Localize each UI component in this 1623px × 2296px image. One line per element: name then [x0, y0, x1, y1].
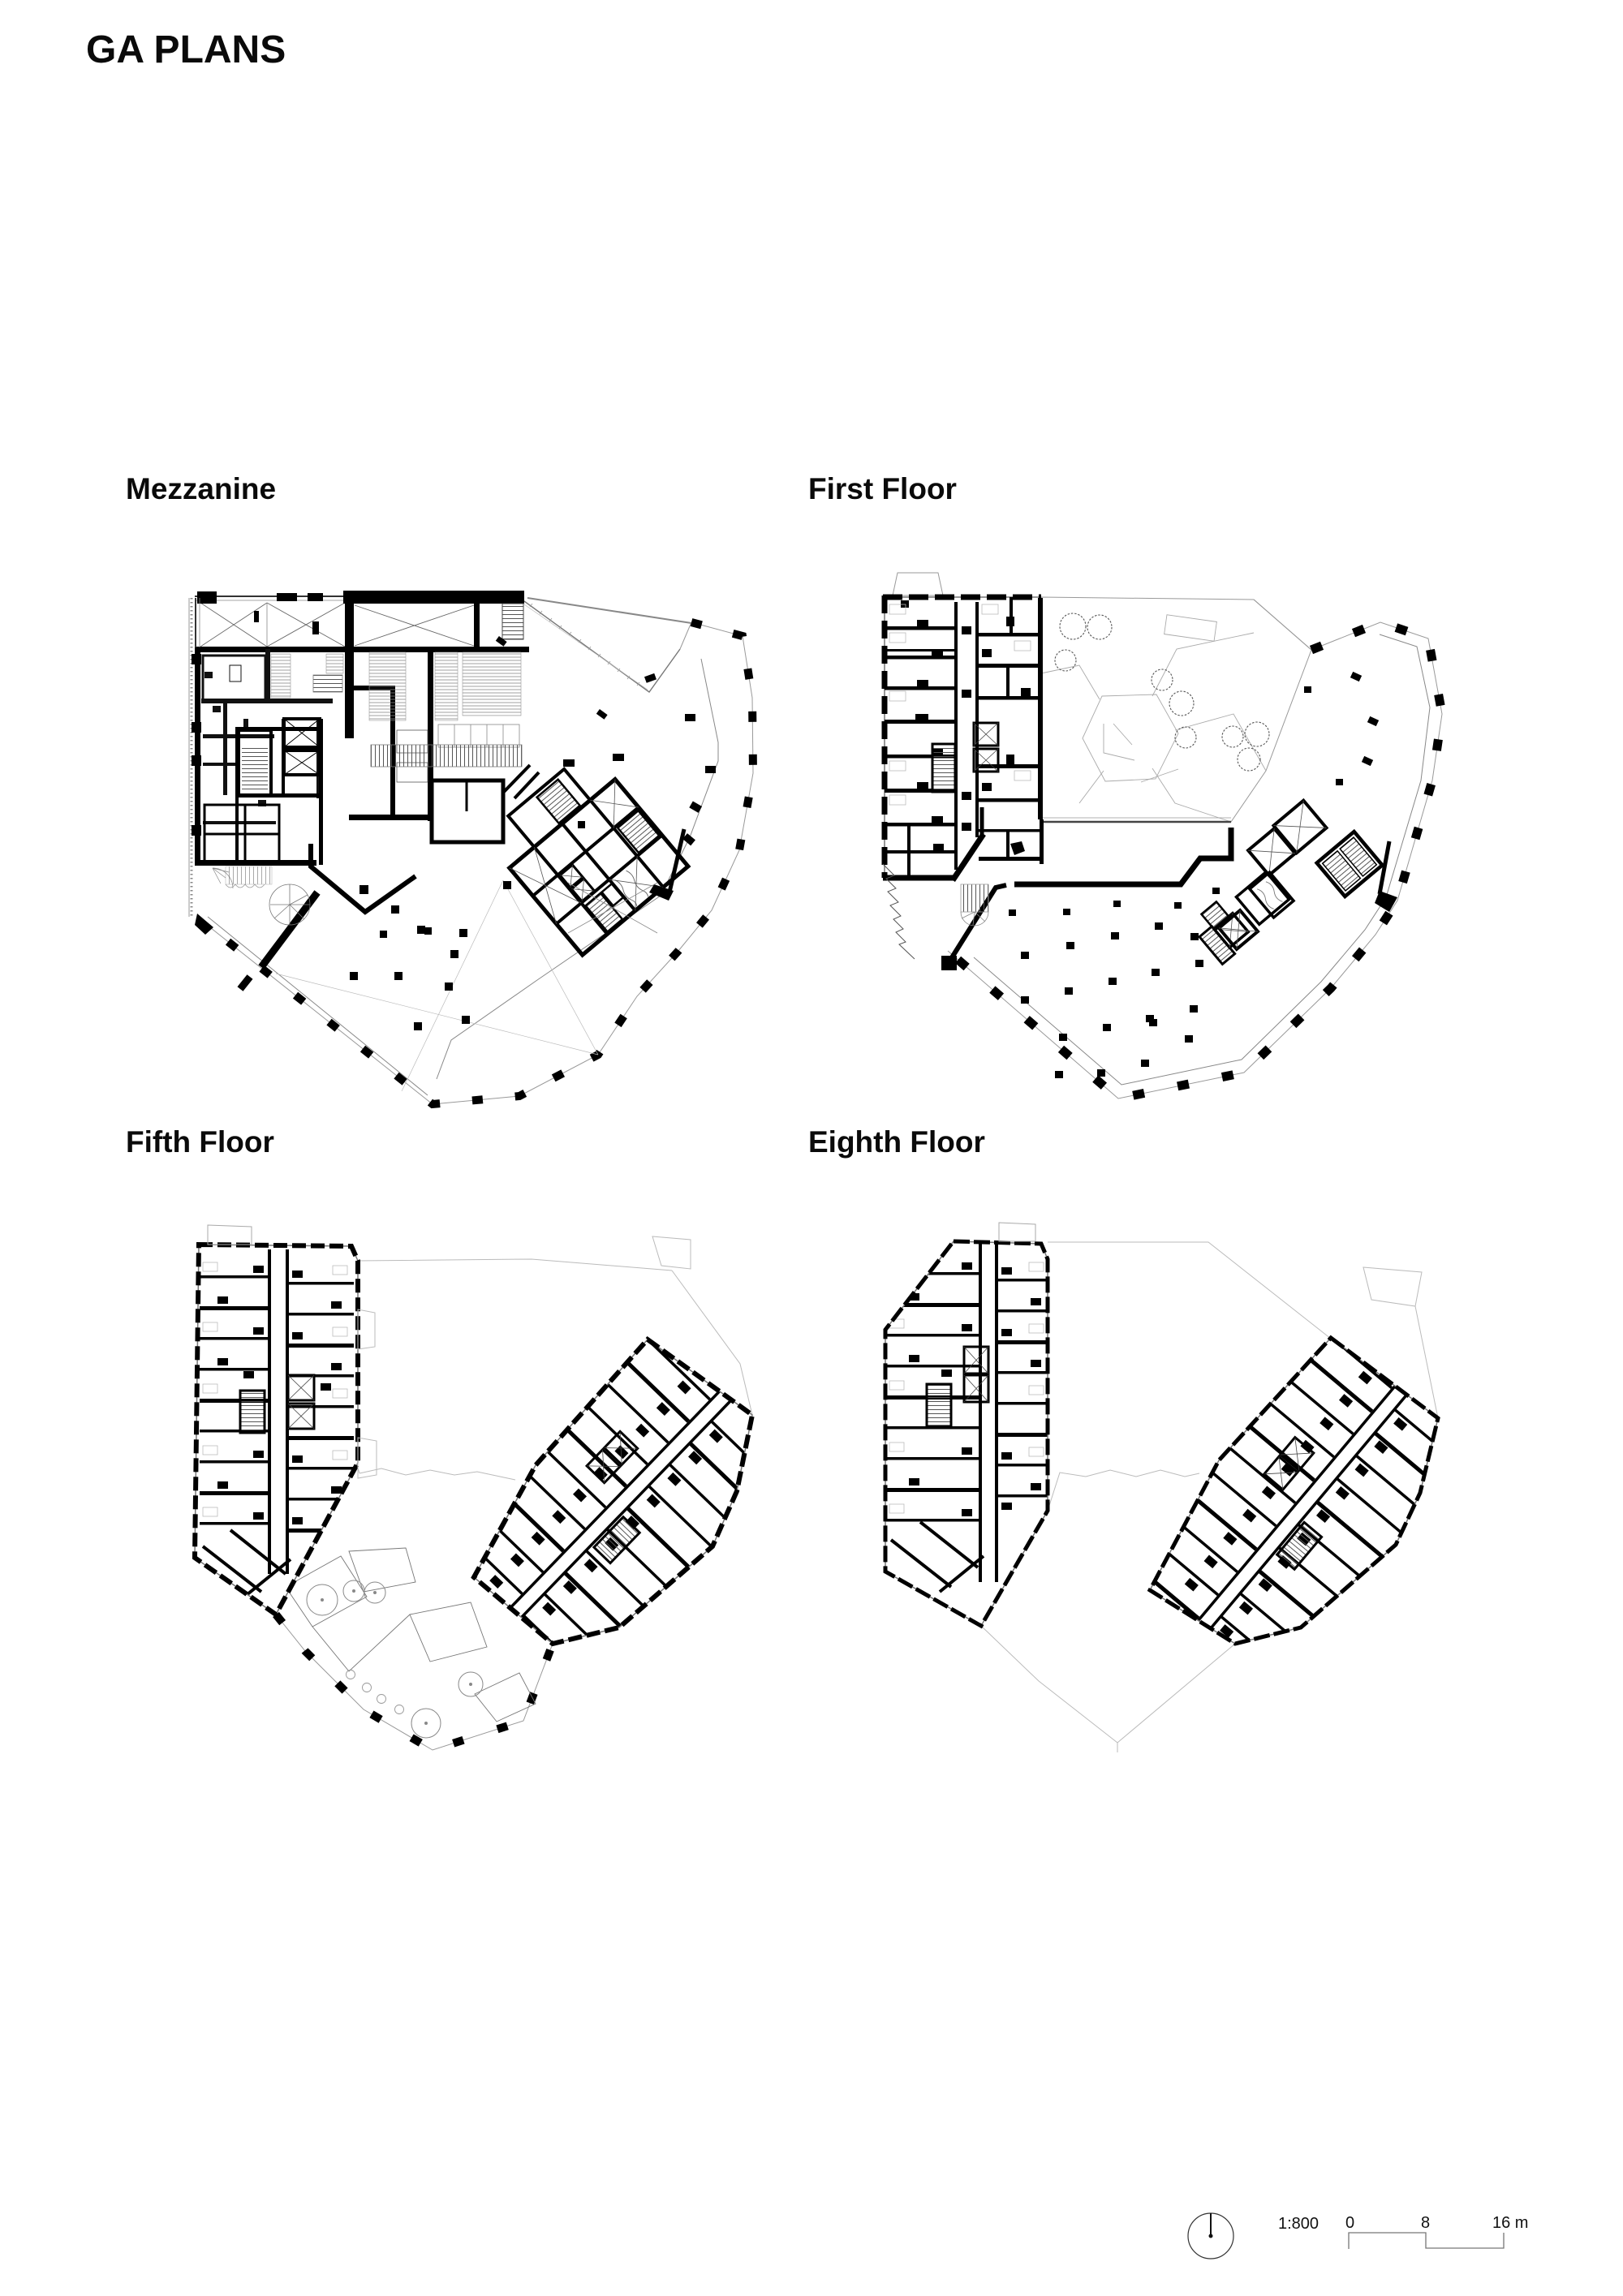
svg-text:8: 8	[1421, 2214, 1430, 2232]
svg-text:1:800: 1:800	[1278, 2215, 1319, 2233]
svg-text:0: 0	[1345, 2214, 1354, 2232]
svg-text:16 m: 16 m	[1492, 2214, 1528, 2232]
